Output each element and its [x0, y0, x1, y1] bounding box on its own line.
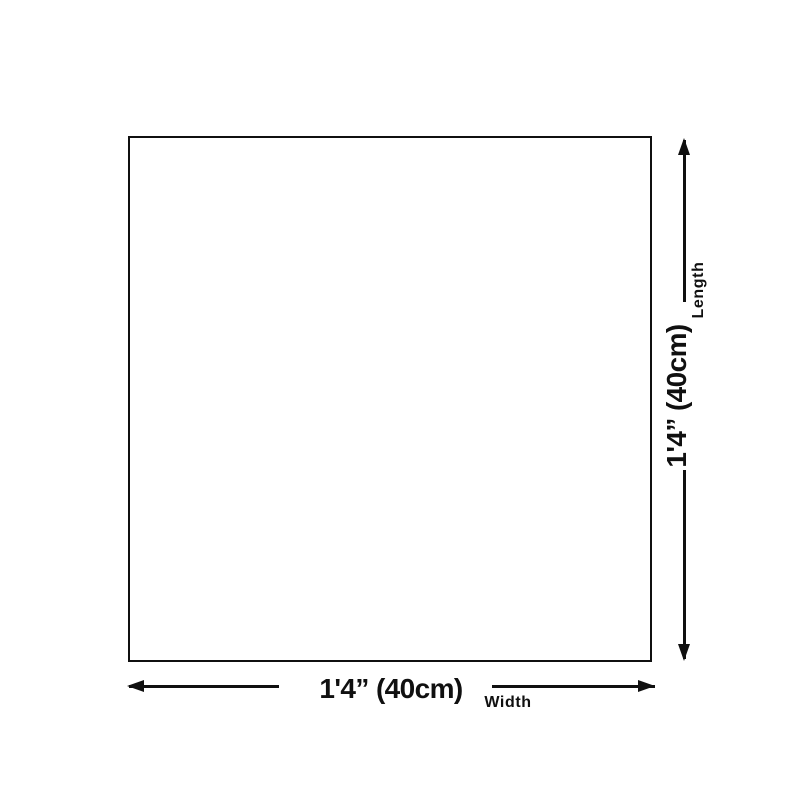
width-label: Width	[484, 695, 531, 711]
arrow-left-icon	[127, 680, 144, 692]
length-arrow-line-upper	[683, 140, 686, 302]
arrow-down-icon	[678, 644, 690, 661]
width-arrow-line-left	[129, 685, 279, 688]
product-outline-box	[128, 136, 652, 662]
length-value: 1'4” (40cm)	[663, 324, 691, 467]
width-value: 1'4” (40cm)	[319, 675, 462, 703]
length-arrow-line-lower	[683, 470, 686, 659]
arrow-right-icon	[638, 680, 655, 692]
product-dimension-diagram: 1'4” (40cm) Length 1'4” (40cm) Width	[0, 0, 800, 800]
length-label: Length	[691, 262, 707, 319]
width-arrow-line-right	[492, 685, 655, 688]
arrow-up-icon	[678, 138, 690, 155]
